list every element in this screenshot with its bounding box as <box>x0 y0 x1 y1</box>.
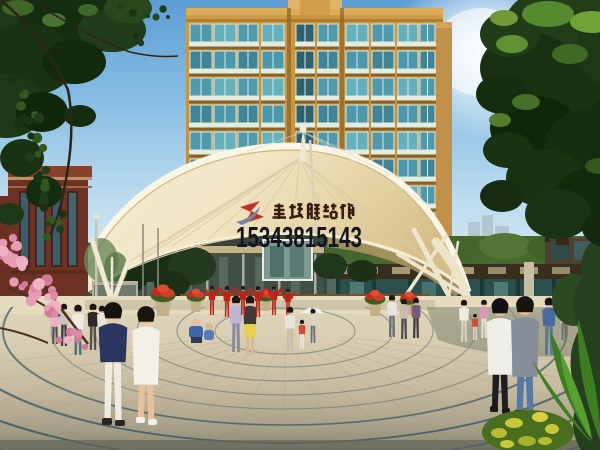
svg-text:15343815143: 15343815143 <box>236 222 362 254</box>
